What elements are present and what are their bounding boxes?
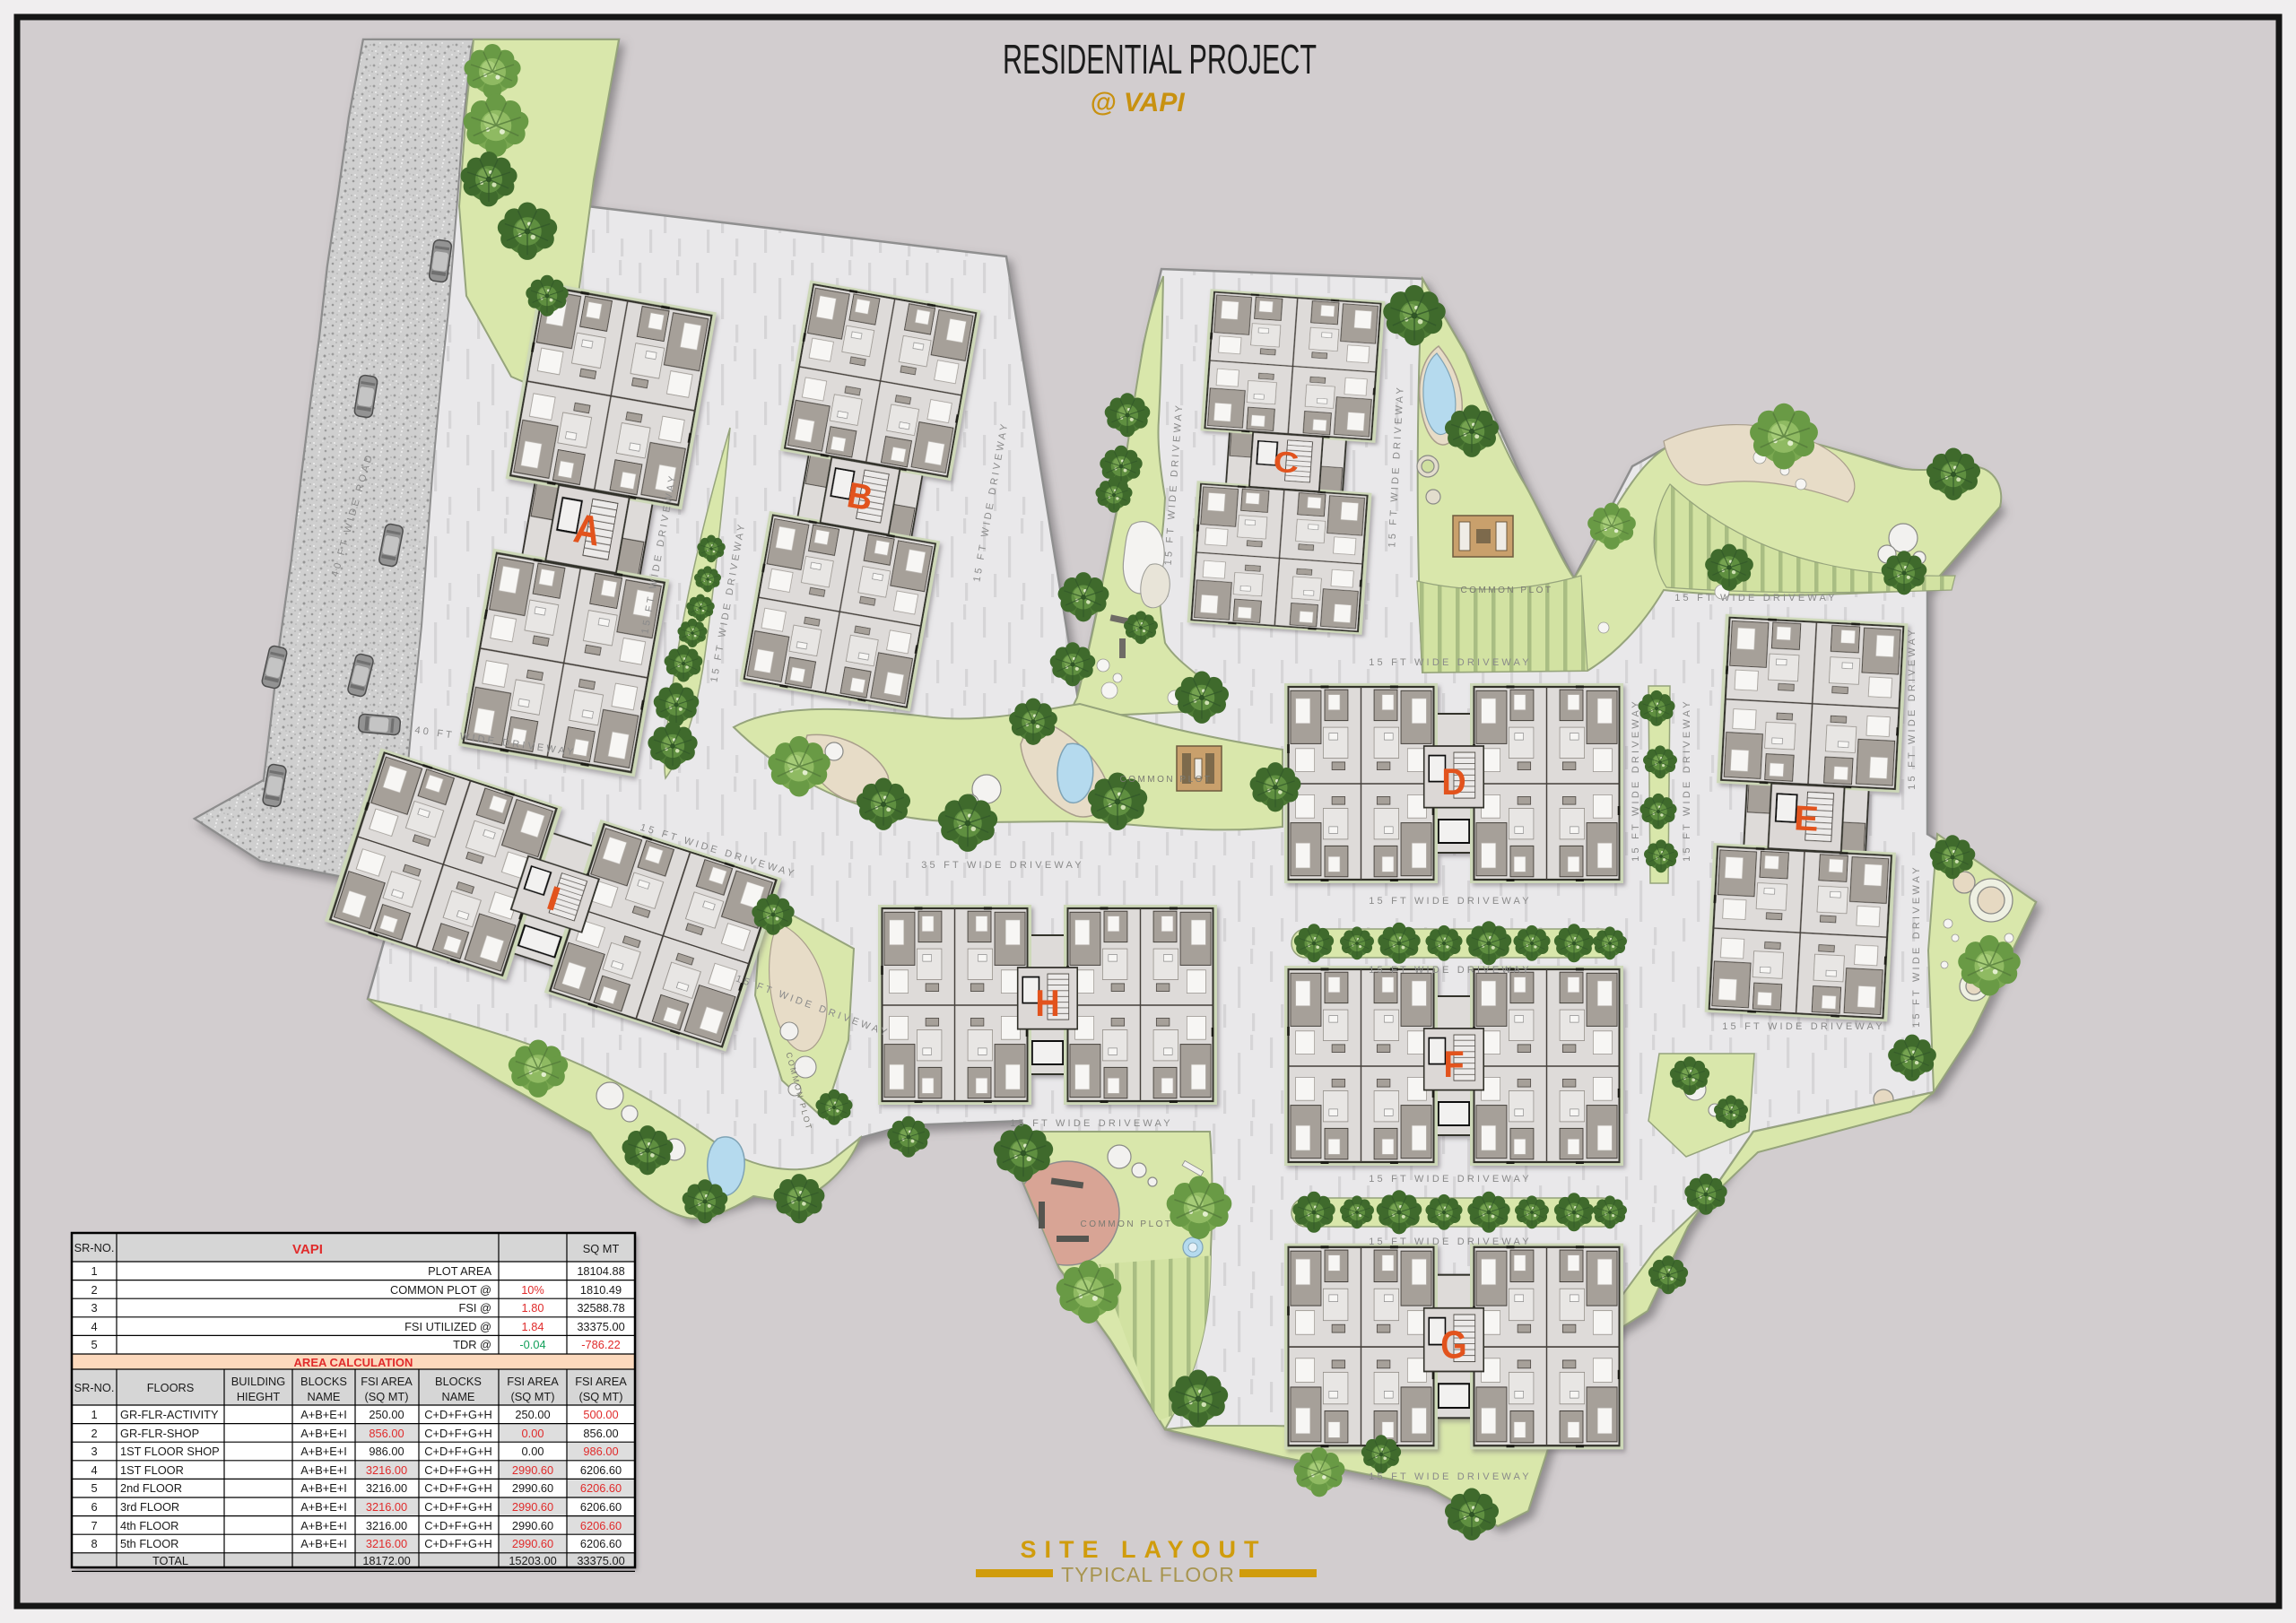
svg-text:E: E: [1793, 799, 1819, 838]
svg-text:250.00: 250.00: [515, 1408, 550, 1421]
svg-text:1.80: 1.80: [522, 1301, 544, 1315]
svg-text:SITE LAYOUT: SITE LAYOUT: [1020, 1536, 1266, 1563]
svg-text:32588.78: 32588.78: [577, 1301, 624, 1315]
svg-text:500.00: 500.00: [583, 1408, 618, 1421]
svg-text:3216.00: 3216.00: [366, 1481, 407, 1495]
svg-text:A+B+E+I: A+B+E+I: [300, 1445, 347, 1458]
svg-text:2: 2: [91, 1283, 97, 1297]
svg-text:F: F: [1443, 1044, 1464, 1085]
svg-text:15 FT WIDE DRIVEWAY: 15 FT WIDE DRIVEWAY: [1010, 1118, 1173, 1129]
svg-text:3216.00: 3216.00: [366, 1463, 407, 1477]
svg-text:FSI AREA: FSI AREA: [507, 1375, 559, 1388]
svg-text:15 FT WIDE DRIVEWAY: 15 FT WIDE DRIVEWAY: [1911, 864, 1922, 1028]
svg-text:6: 6: [91, 1500, 97, 1514]
svg-text:FSI @: FSI @: [459, 1301, 491, 1315]
svg-text:856.00: 856.00: [369, 1427, 404, 1440]
svg-text:15 FT WIDE DRIVEWAY: 15 FT WIDE DRIVEWAY: [1674, 593, 1838, 603]
svg-text:8: 8: [91, 1537, 97, 1550]
svg-text:FLOORS: FLOORS: [147, 1381, 195, 1394]
svg-text:(SQ MT): (SQ MT): [510, 1390, 554, 1403]
svg-text:COMMON PLOT @: COMMON PLOT @: [390, 1283, 491, 1297]
svg-text:856.00: 856.00: [583, 1427, 618, 1440]
svg-text:15 FT WIDE DRIVEWAY: 15 FT WIDE DRIVEWAY: [1369, 965, 1532, 976]
svg-text:5: 5: [91, 1338, 97, 1351]
svg-text:15 FT WIDE DRIVEWAY: 15 FT WIDE DRIVEWAY: [1682, 699, 1692, 862]
svg-text:1.84: 1.84: [522, 1320, 544, 1333]
svg-text:1ST FLOOR: 1ST FLOOR: [120, 1463, 184, 1477]
svg-text:SR-NO.: SR-NO.: [74, 1241, 115, 1254]
svg-text:3216.00: 3216.00: [366, 1500, 407, 1514]
svg-text:FSI AREA: FSI AREA: [575, 1375, 627, 1388]
svg-text:986.00: 986.00: [583, 1445, 618, 1458]
svg-text:2990.60: 2990.60: [512, 1519, 553, 1532]
svg-text:SR-NO.: SR-NO.: [74, 1381, 115, 1394]
svg-text:COMMON PLOT: COMMON PLOT: [1080, 1219, 1172, 1229]
svg-text:2nd FLOOR: 2nd FLOOR: [120, 1481, 182, 1495]
svg-text:3: 3: [91, 1301, 97, 1315]
svg-text:33375.00: 33375.00: [577, 1320, 624, 1333]
svg-text:SQ MT: SQ MT: [583, 1242, 620, 1255]
svg-text:A+B+E+I: A+B+E+I: [300, 1481, 347, 1495]
svg-text:HIEGHT: HIEGHT: [237, 1390, 281, 1403]
svg-text:NAME: NAME: [308, 1390, 341, 1403]
svg-text:BLOCKS: BLOCKS: [300, 1375, 347, 1388]
svg-text:NAME: NAME: [442, 1390, 475, 1403]
svg-text:250.00: 250.00: [369, 1408, 404, 1421]
svg-text:1: 1: [91, 1408, 97, 1421]
svg-text:3: 3: [91, 1445, 97, 1458]
svg-text:1ST FLOOR SHOP: 1ST FLOOR SHOP: [120, 1445, 220, 1458]
svg-text:15203.00: 15203.00: [509, 1554, 556, 1567]
svg-text:15 FT WIDE DRIVEWAY: 15 FT WIDE DRIVEWAY: [1722, 1021, 1885, 1032]
svg-text:15 FT WIDE DRIVEWAY: 15 FT WIDE DRIVEWAY: [1369, 1237, 1532, 1247]
svg-text:7: 7: [91, 1519, 97, 1532]
svg-text:VAPI: VAPI: [292, 1242, 323, 1257]
svg-text:H: H: [1035, 983, 1059, 1024]
svg-text:3216.00: 3216.00: [366, 1519, 407, 1532]
svg-text:15 FT WIDE DRIVEWAY: 15 FT WIDE DRIVEWAY: [1631, 699, 1641, 862]
svg-text:0.00: 0.00: [522, 1445, 544, 1458]
svg-text:-786.22: -786.22: [581, 1338, 620, 1351]
svg-text:A+B+E+I: A+B+E+I: [300, 1500, 347, 1514]
svg-text:15 FT WIDE DRIVEWAY: 15 FT WIDE DRIVEWAY: [1369, 1471, 1532, 1482]
svg-text:986.00: 986.00: [369, 1445, 404, 1458]
svg-text:(SQ MT): (SQ MT): [578, 1390, 622, 1403]
svg-text:COMMON PLOT: COMMON PLOT: [1460, 586, 1552, 595]
svg-text:18172.00: 18172.00: [362, 1554, 410, 1567]
svg-text:2990.60: 2990.60: [512, 1463, 553, 1477]
svg-text:D: D: [1441, 761, 1465, 803]
svg-text:A+B+E+I: A+B+E+I: [300, 1463, 347, 1477]
svg-text:4th FLOOR: 4th FLOOR: [120, 1519, 178, 1532]
svg-text:15 FT WIDE DRIVEWAY: 15 FT WIDE DRIVEWAY: [1907, 627, 1918, 790]
svg-text:15 FT WIDE DRIVEWAY: 15 FT WIDE DRIVEWAY: [1369, 657, 1532, 668]
svg-text:C+D+F+G+H: C+D+F+G+H: [424, 1500, 491, 1514]
svg-text:4: 4: [91, 1320, 97, 1333]
svg-text:33375.00: 33375.00: [577, 1554, 624, 1567]
svg-text:C+D+F+G+H: C+D+F+G+H: [424, 1445, 491, 1458]
svg-text:FSI UTILIZED @: FSI UTILIZED @: [404, 1320, 491, 1333]
svg-text:G: G: [1440, 1323, 1466, 1367]
svg-text:35 FT WIDE DRIVEWAY: 35 FT WIDE DRIVEWAY: [921, 860, 1084, 871]
svg-text:6206.60: 6206.60: [580, 1463, 622, 1477]
svg-text:4: 4: [91, 1463, 97, 1477]
svg-text:2: 2: [91, 1427, 97, 1440]
svg-text:15 FT WIDE DRIVEWAY: 15 FT WIDE DRIVEWAY: [1369, 1174, 1532, 1185]
svg-text:GR-FLR-SHOP: GR-FLR-SHOP: [120, 1427, 199, 1440]
svg-text:C+D+F+G+H: C+D+F+G+H: [424, 1519, 491, 1532]
svg-text:5: 5: [91, 1481, 97, 1495]
svg-text:PLOT AREA: PLOT AREA: [428, 1264, 491, 1278]
svg-text:6206.60: 6206.60: [580, 1519, 622, 1532]
svg-text:18104.88: 18104.88: [577, 1264, 624, 1278]
svg-text:0.00: 0.00: [522, 1427, 544, 1440]
svg-text:BLOCKS: BLOCKS: [435, 1375, 482, 1388]
svg-text:FSI AREA: FSI AREA: [361, 1375, 413, 1388]
svg-text:6206.60: 6206.60: [580, 1500, 622, 1514]
svg-text:6206.60: 6206.60: [580, 1537, 622, 1550]
svg-text:1: 1: [91, 1264, 97, 1278]
svg-text:2990.60: 2990.60: [512, 1500, 553, 1514]
svg-text:RESIDENTIAL PROJECT: RESIDENTIAL PROJECT: [1003, 36, 1317, 82]
svg-text:3216.00: 3216.00: [366, 1537, 407, 1550]
svg-text:C+D+F+G+H: C+D+F+G+H: [424, 1408, 491, 1421]
svg-text:C+D+F+G+H: C+D+F+G+H: [424, 1427, 491, 1440]
svg-text:TYPICAL FLOOR: TYPICAL FLOOR: [1061, 1563, 1235, 1586]
svg-text:A+B+E+I: A+B+E+I: [300, 1427, 347, 1440]
svg-text:-0.04: -0.04: [519, 1338, 545, 1351]
svg-text:5th FLOOR: 5th FLOOR: [120, 1537, 178, 1550]
svg-text:A+B+E+I: A+B+E+I: [300, 1408, 347, 1421]
svg-text:COMMON PLOT: COMMON PLOT: [1119, 775, 1212, 785]
svg-text:C+D+F+G+H: C+D+F+G+H: [424, 1481, 491, 1495]
svg-text:A+B+E+I: A+B+E+I: [300, 1519, 347, 1532]
svg-text:C+D+F+G+H: C+D+F+G+H: [424, 1463, 491, 1477]
svg-text:15 FT WIDE DRIVEWAY: 15 FT WIDE DRIVEWAY: [1369, 896, 1532, 907]
svg-text:@ VAPI: @ VAPI: [1090, 88, 1185, 117]
svg-text:TOTAL: TOTAL: [152, 1554, 188, 1567]
svg-text:2990.60: 2990.60: [512, 1537, 553, 1550]
svg-text:BUILDING: BUILDING: [231, 1375, 285, 1388]
svg-text:1810.49: 1810.49: [580, 1283, 622, 1297]
svg-text:C+D+F+G+H: C+D+F+G+H: [424, 1537, 491, 1550]
svg-text:AREA CALCULATION: AREA CALCULATION: [294, 1356, 413, 1369]
svg-text:TDR @: TDR @: [453, 1338, 491, 1351]
svg-text:2990.60: 2990.60: [512, 1481, 553, 1495]
svg-text:(SQ MT): (SQ MT): [364, 1390, 408, 1403]
svg-text:3rd FLOOR: 3rd FLOOR: [120, 1500, 179, 1514]
svg-text:GR-FLR-ACTIVITY: GR-FLR-ACTIVITY: [120, 1408, 219, 1421]
svg-text:C: C: [1273, 445, 1300, 480]
svg-text:A+B+E+I: A+B+E+I: [300, 1537, 347, 1550]
svg-text:10%: 10%: [521, 1283, 544, 1297]
svg-text:6206.60: 6206.60: [580, 1481, 622, 1495]
